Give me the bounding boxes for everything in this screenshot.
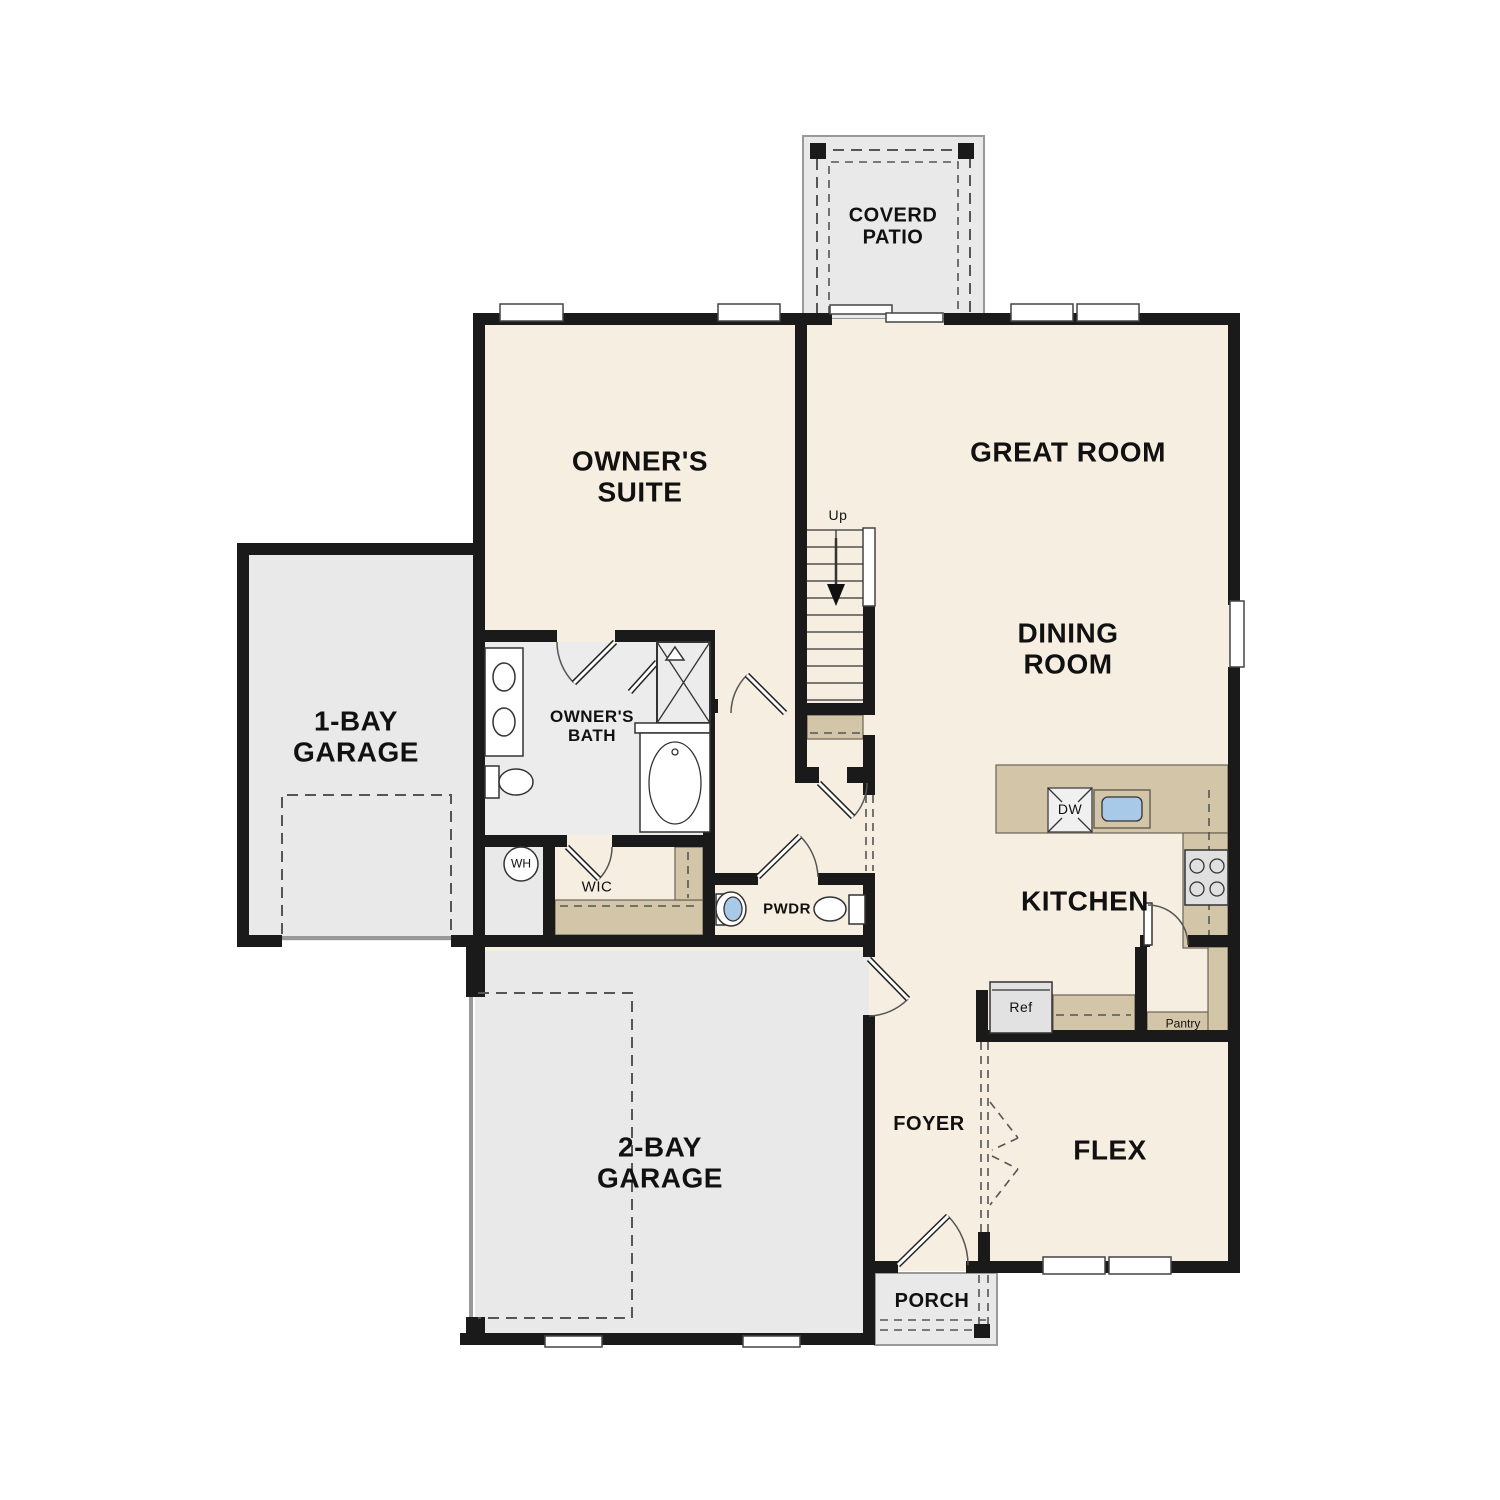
cooktop [1185, 850, 1228, 905]
vanity-sink [493, 708, 515, 736]
label-owners-suite: OWNER'SSUITE [572, 446, 708, 509]
label-refrigerator: Ref [1009, 1000, 1032, 1016]
toilet-tank [485, 766, 499, 798]
label-pantry: Pantry [1166, 1017, 1201, 1030]
kitchen-sink [1102, 797, 1142, 821]
label-kitchen: KITCHEN [1021, 885, 1149, 916]
label-wic: WIC [582, 880, 613, 897]
label-powder: PWDR [763, 902, 811, 919]
tub [640, 733, 710, 832]
label-owners-bath: OWNER'SBATH [550, 707, 634, 745]
patio-slider-panel [886, 313, 943, 322]
label-water-heater: WH [511, 857, 531, 870]
tub-deck [635, 723, 710, 733]
toilet-bowl [499, 769, 533, 795]
label-flex: FLEX [1073, 1134, 1147, 1165]
label-dining-room: DININGROOM [1018, 618, 1119, 681]
label-dishwasher: DW [1058, 802, 1082, 818]
toilet-bowl [814, 897, 846, 921]
toilet-tank [849, 895, 865, 924]
stair-handrail [863, 528, 875, 606]
label-foyer: FOYER [893, 1113, 964, 1135]
patio-slider-panel [830, 305, 892, 314]
label-1bay-garage: 1-BAYGARAGE [293, 706, 419, 769]
vanity-sink [493, 663, 515, 691]
label-great-room: GREAT ROOM [970, 436, 1166, 467]
floor-plan-drawing [0, 0, 1500, 1500]
label-2bay-garage: 2-BAYGARAGE [597, 1132, 723, 1195]
label-covered-patio: COVERDPATIO [849, 205, 938, 250]
label-porch: PORCH [895, 1290, 970, 1312]
label-stairs-up: Up [829, 508, 848, 524]
floor-plan: COVERDPATIO OWNER'SSUITE GREAT ROOM DINI… [0, 0, 1500, 1500]
